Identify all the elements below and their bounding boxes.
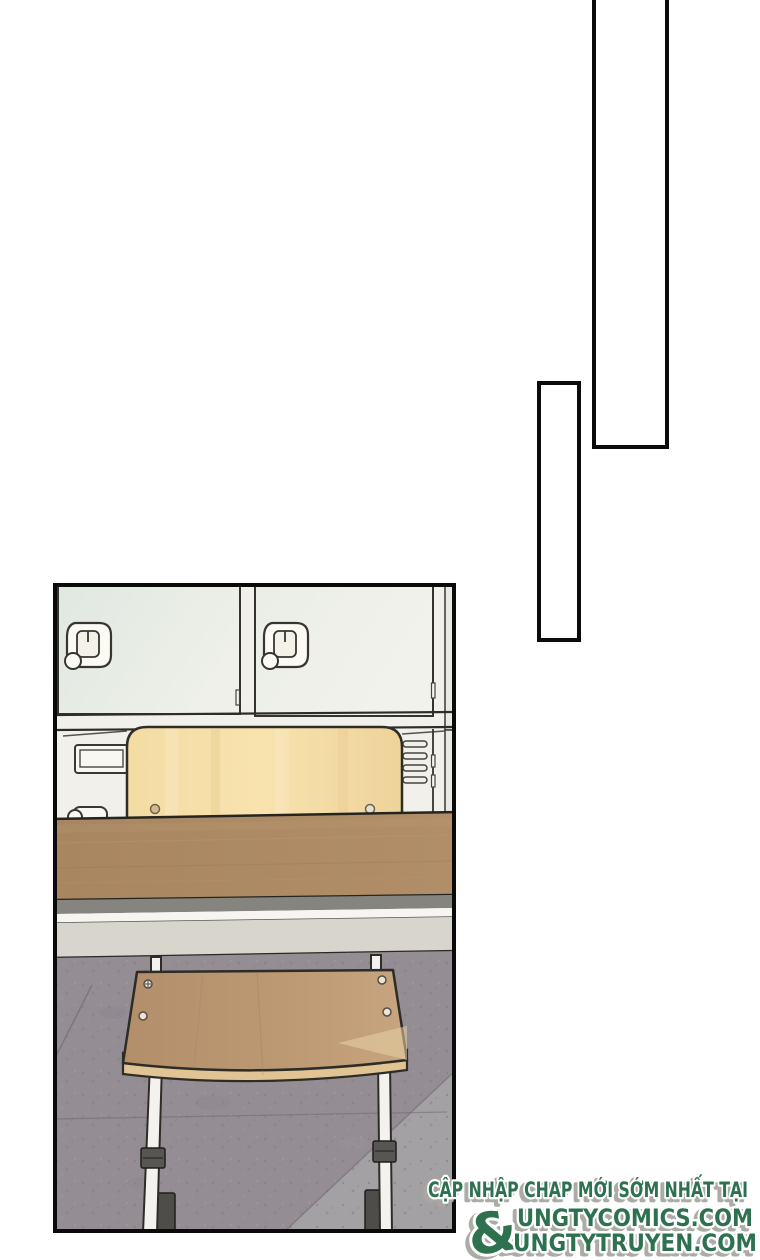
comic-page: CẬP NHẬP CHAP MỚI SỚM NHẤT TẠI & UNGTYCO… <box>0 0 760 1260</box>
watermark: CẬP NHẬP CHAP MỚI SỚM NHẤT TẠI & UNGTYCO… <box>410 1156 760 1260</box>
desk-surface <box>53 812 456 900</box>
screw-icon <box>151 805 160 814</box>
desk-apron <box>53 895 456 958</box>
chair-rear-leg <box>371 955 381 971</box>
classroom-panel <box>53 583 456 1233</box>
screw-icon <box>378 976 386 984</box>
empty-panel-narrow <box>537 381 581 642</box>
watermark-site1: UNGTYCOMICS.COM <box>517 1204 753 1232</box>
door-latch-icon <box>432 755 436 767</box>
door-latch-icon <box>432 775 436 787</box>
door-latch-icon <box>236 690 240 705</box>
watermark-site2: UNGTYTRUYEN.COM <box>513 1229 757 1257</box>
locker-handle-icon <box>65 623 111 669</box>
screw-icon <box>383 1008 391 1016</box>
chair-backrest <box>127 727 402 823</box>
chair-foot-left <box>157 1193 175 1233</box>
chair-seat <box>123 970 407 1081</box>
screw-icon <box>139 1012 147 1020</box>
label-holder <box>75 745 128 773</box>
empty-panel-tall <box>592 0 669 449</box>
door-latch-icon <box>432 683 436 698</box>
classroom-scene <box>53 583 456 1233</box>
locker-handle-icon <box>262 623 308 669</box>
seat-top <box>123 970 407 1070</box>
watermark-line1: CẬP NHẬP CHAP MỚI SỚM NHẤT TẠI <box>428 1174 748 1202</box>
screw-icon <box>366 805 375 814</box>
